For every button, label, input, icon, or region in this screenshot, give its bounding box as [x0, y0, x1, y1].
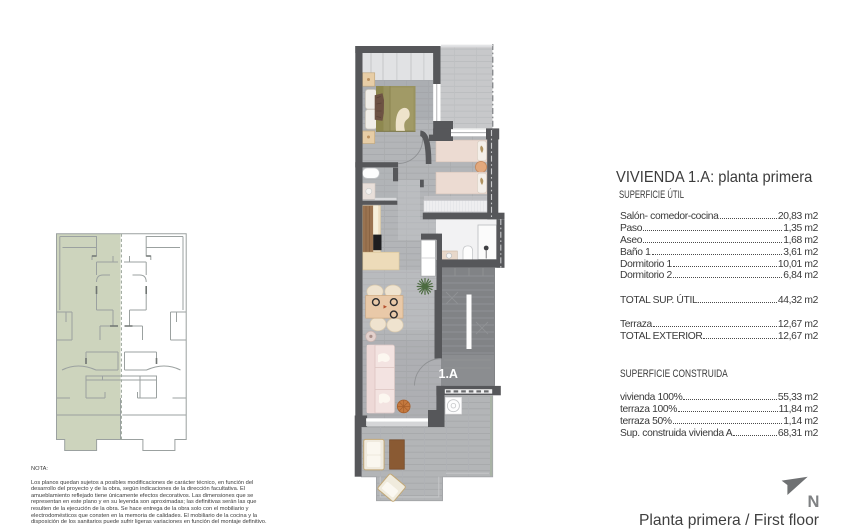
- svg-text:1.A: 1.A: [439, 367, 458, 381]
